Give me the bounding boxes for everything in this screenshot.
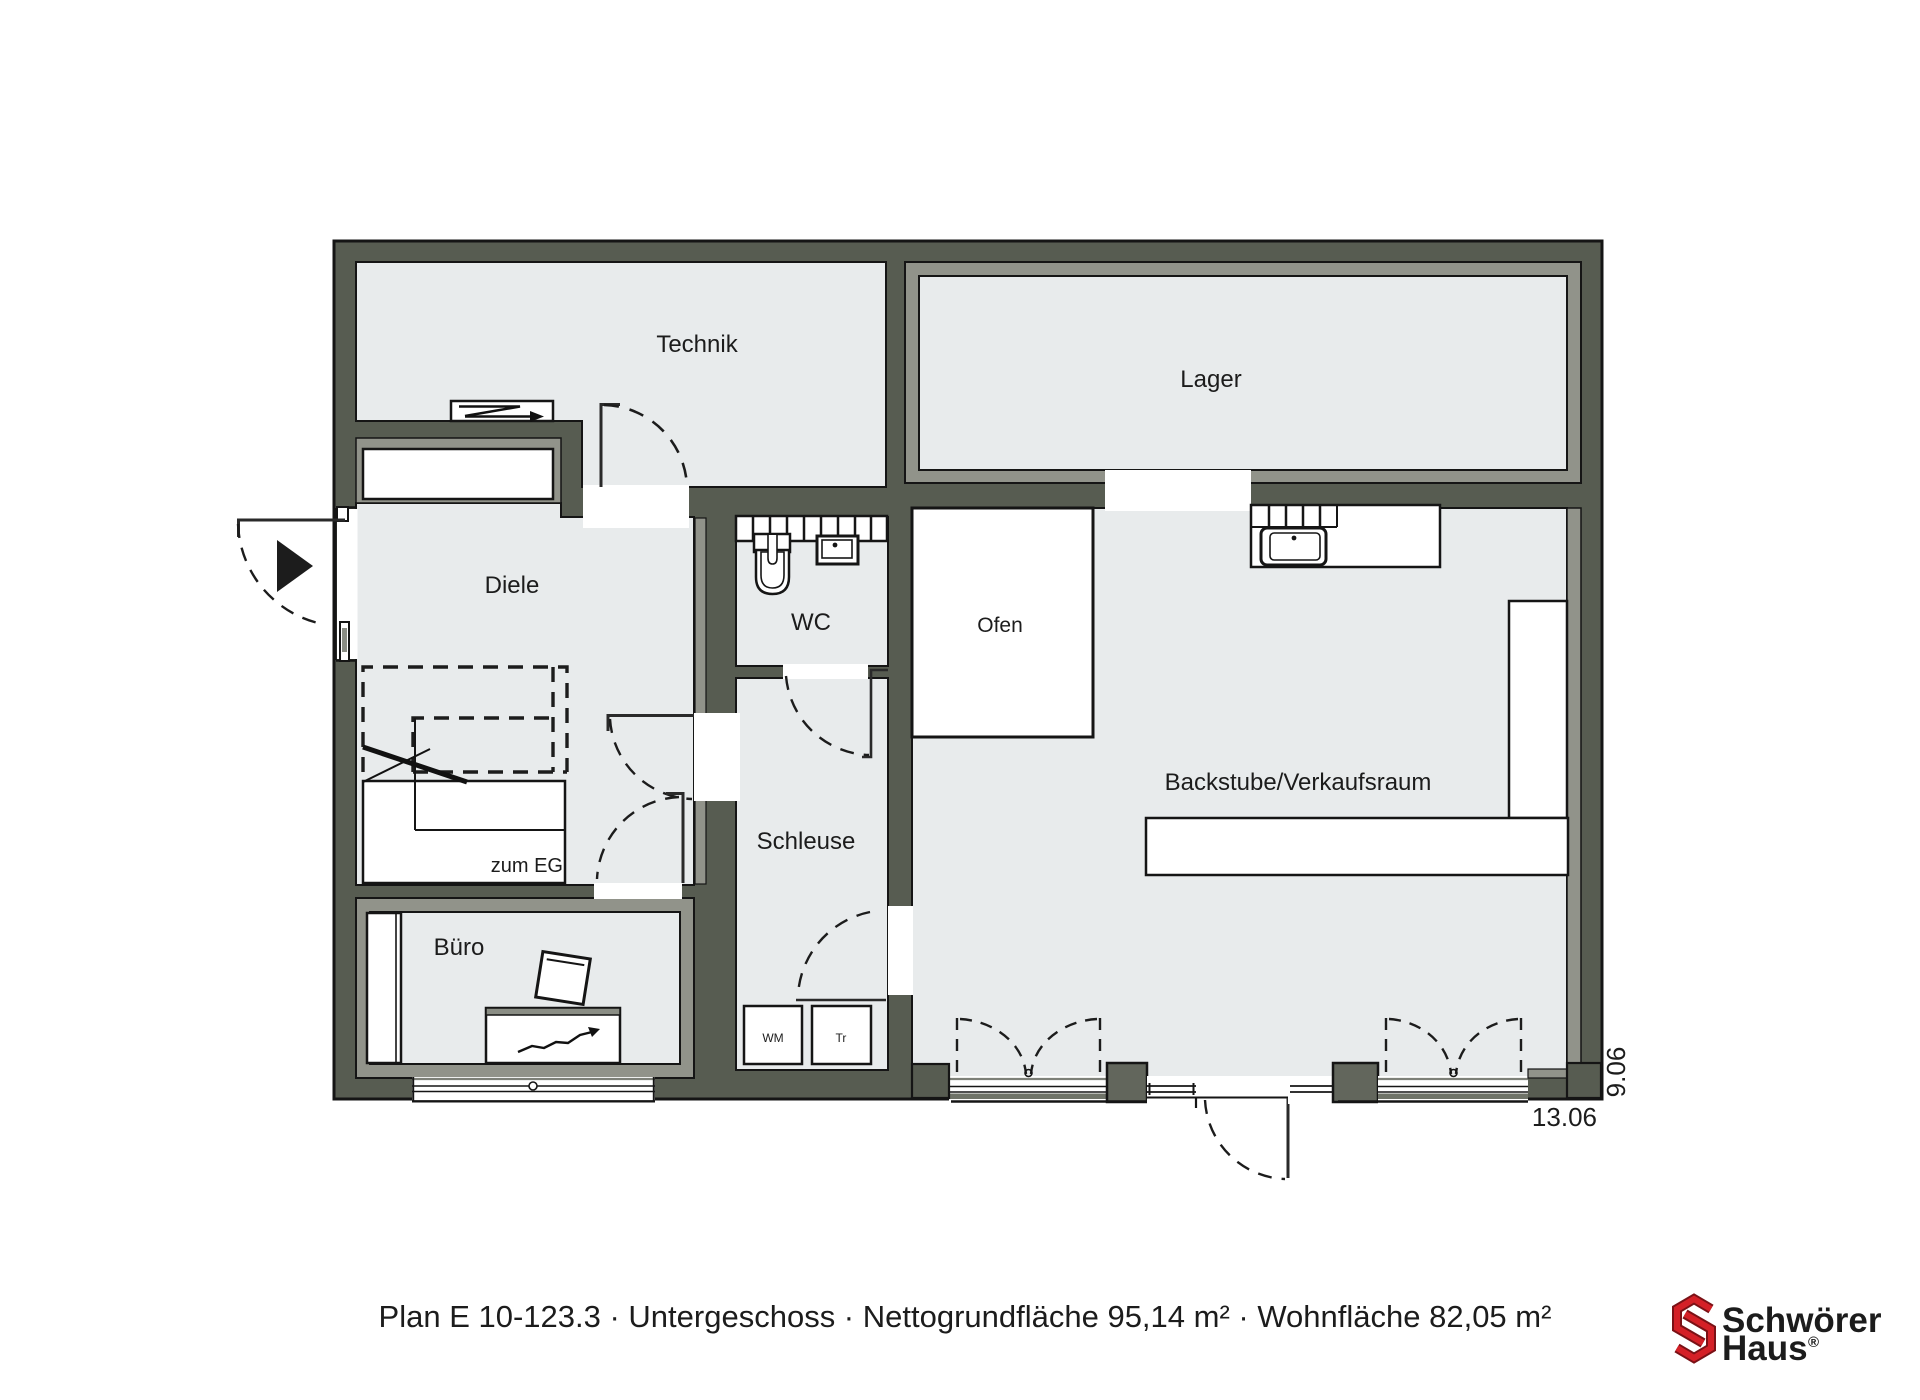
- svg-text:Technik: Technik: [656, 331, 738, 358]
- svg-text:Plan E 10-123.3 · Untergeschos: Plan E 10-123.3 · Untergeschoss · Nettog…: [379, 1299, 1552, 1334]
- svg-text:zum EG: zum EG: [491, 855, 563, 877]
- svg-text:Ofen: Ofen: [977, 614, 1023, 637]
- svg-text:Büro: Büro: [434, 934, 485, 961]
- svg-text:Diele: Diele: [485, 572, 540, 599]
- svg-text:Backstube/Verkaufsraum: Backstube/Verkaufsraum: [1165, 769, 1432, 796]
- svg-text:Haus: Haus: [1722, 1329, 1808, 1368]
- svg-text:WM: WM: [762, 1031, 783, 1045]
- svg-text:Schleuse: Schleuse: [757, 828, 856, 855]
- svg-text:®: ®: [1808, 1334, 1819, 1351]
- svg-text:13.06: 13.06: [1532, 1102, 1597, 1132]
- svg-text:Lager: Lager: [1180, 366, 1241, 393]
- svg-text:WC: WC: [791, 609, 831, 636]
- svg-text:Tr: Tr: [836, 1031, 847, 1045]
- svg-text:9.06: 9.06: [1601, 1047, 1631, 1098]
